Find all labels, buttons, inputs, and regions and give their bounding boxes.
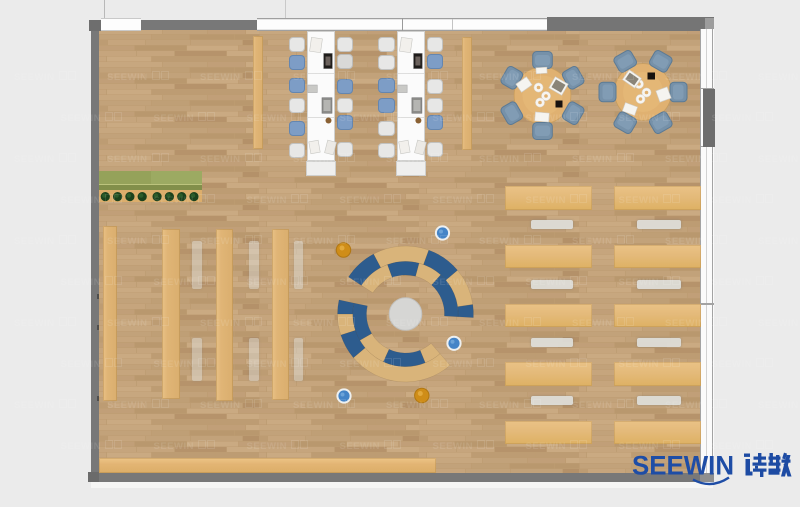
svg-text:SEEWIN: SEEWIN — [632, 451, 734, 481]
